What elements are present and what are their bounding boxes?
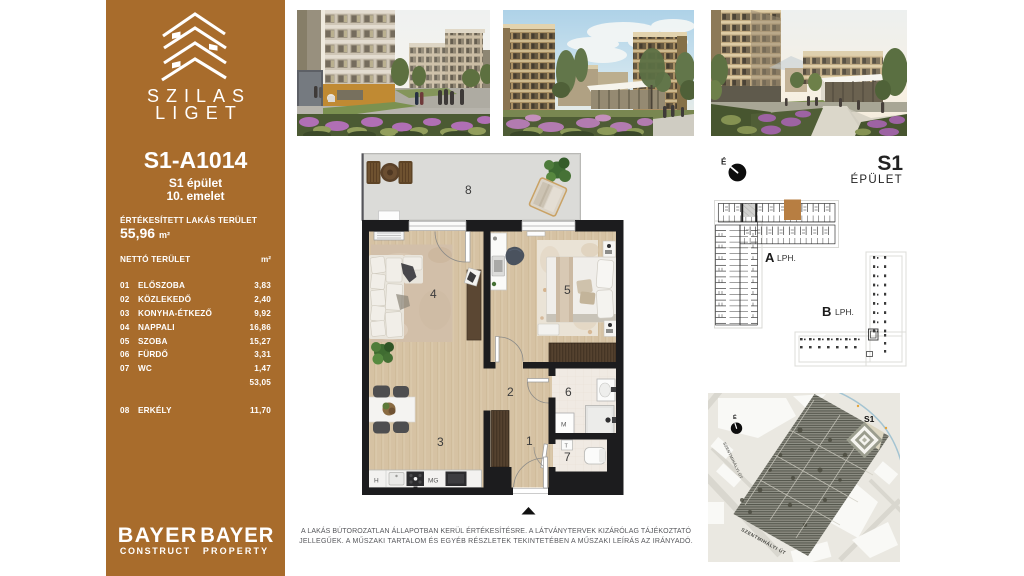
svg-text:4: 4 <box>430 287 437 301</box>
svg-text:É: É <box>733 413 737 421</box>
svg-text:S1: S1 <box>877 152 903 175</box>
svg-text:A: A <box>765 250 775 265</box>
svg-text:S1: S1 <box>864 414 875 424</box>
svg-text:6: 6 <box>565 385 572 399</box>
svg-text:B: B <box>822 304 831 319</box>
svg-text:H: H <box>374 478 379 485</box>
svg-text:1: 1 <box>526 434 533 448</box>
svg-text:5: 5 <box>564 283 571 297</box>
svg-text:É: É <box>721 158 727 167</box>
svg-text:ÉPÜLET: ÉPÜLET <box>850 173 903 186</box>
svg-text:7: 7 <box>564 450 571 464</box>
svg-text:8: 8 <box>465 183 472 197</box>
svg-text:LPH.: LPH. <box>835 307 854 317</box>
svg-text:M: M <box>561 422 566 429</box>
svg-text:2: 2 <box>507 385 514 399</box>
svg-text:LPH.: LPH. <box>777 253 796 263</box>
svg-text:MG: MG <box>428 478 438 485</box>
svg-text:3: 3 <box>437 435 444 449</box>
